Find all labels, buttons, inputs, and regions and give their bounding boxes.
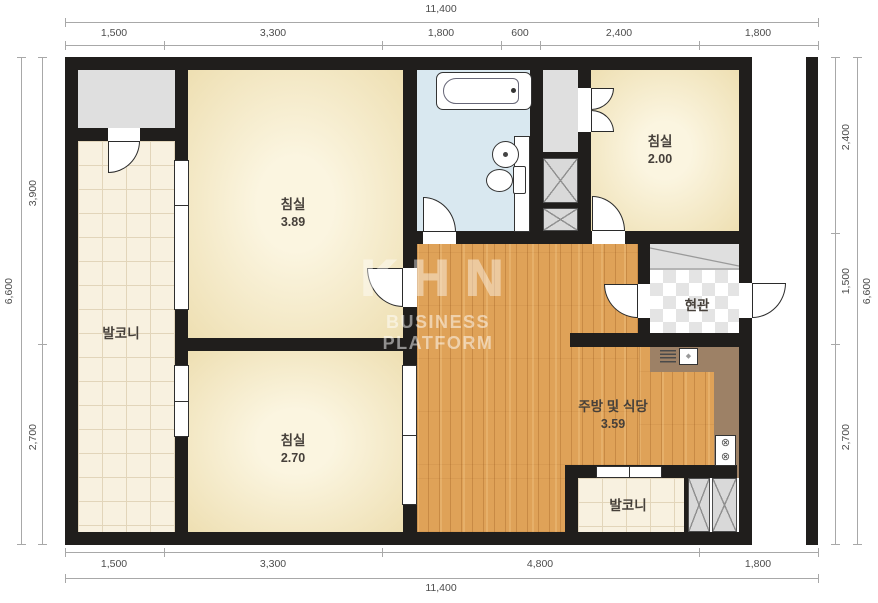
room-label-kitchen-dining: 주방 및 식당 3.59 [553, 398, 673, 432]
bathtub-faucet-icon [511, 88, 516, 93]
ruler-tick [540, 41, 541, 50]
door-opening [423, 231, 456, 244]
ruler-tick [382, 41, 383, 50]
wall-outer-bottom [65, 532, 752, 545]
duct-shaft [543, 70, 578, 152]
ruler-line [857, 57, 858, 545]
ruler-tick [831, 57, 840, 58]
wall-bedroom2-left [578, 57, 591, 244]
ruler-tick [38, 344, 47, 345]
ruler-line [65, 45, 818, 46]
window [174, 160, 189, 310]
ruler-tick [65, 548, 66, 557]
wall-kitchen-top [570, 333, 752, 347]
dim-right-seg3: 2,700 [840, 424, 852, 450]
shoe-cabinet [650, 244, 739, 270]
ac-unit-x-box [712, 478, 737, 532]
wall-adjacent-bar [806, 57, 818, 545]
dim-left-seg1: 3,900 [27, 180, 39, 206]
room-name: 현관 [657, 297, 737, 315]
watermark-logo: KHN [338, 250, 538, 308]
ruler-line [835, 57, 836, 545]
toilet-tank-icon [513, 166, 526, 194]
stove-icon: ⊗ ⊗ [715, 435, 736, 466]
dim-top-seg3: 1,800 [411, 27, 471, 39]
dim-right-seg2: 1,500 [840, 268, 852, 294]
door-opening [578, 88, 591, 132]
floor-plan: 11,400 1,500 3,300 1,800 600 2,400 1,800… [0, 0, 878, 603]
dim-bottom-seg3: 4,800 [510, 558, 570, 570]
shaft-x-box [543, 208, 578, 231]
room-name: 침실 [243, 196, 343, 214]
wall-shaft-divider [543, 152, 578, 158]
watermark-tagline: BUSINESS PLATFORM [330, 312, 546, 354]
dim-bottom-seg1: 1,500 [84, 558, 144, 570]
dim-left-total: 6,600 [3, 278, 15, 304]
bathtub-inner [443, 78, 519, 104]
door-opening [638, 284, 650, 318]
ruler-tick [699, 548, 700, 557]
ruler-line [42, 57, 43, 545]
room-area: 2.70 [243, 450, 343, 466]
ruler-tick [65, 574, 66, 583]
ruler-line [21, 57, 22, 545]
door-opening [739, 283, 752, 318]
dim-right-total: 6,600 [861, 278, 873, 304]
ruler-tick [818, 18, 819, 27]
window [596, 466, 662, 478]
ruler-tick [164, 41, 165, 50]
ruler-tick [17, 57, 26, 58]
dim-top-seg5: 2,400 [589, 27, 649, 39]
room-area: 3.89 [243, 214, 343, 230]
room-name: 주방 및 식당 [553, 398, 673, 416]
door-opening [108, 128, 140, 141]
ruler-tick [818, 41, 819, 50]
ruler-tick [17, 544, 26, 545]
sliding-door [402, 365, 417, 505]
ruler-tick [38, 57, 47, 58]
room-name: 침실 [610, 133, 710, 151]
ruler-tick [699, 41, 700, 50]
ruler-tick [831, 233, 840, 234]
room-label-bedroom-main: 침실 3.89 [243, 196, 343, 230]
storage-room-floor [78, 70, 175, 128]
room-name: 발코니 [71, 325, 171, 343]
ruler-tick [831, 344, 840, 345]
ruler-line [65, 22, 818, 23]
kitchen-sink-icon: ◆ [679, 348, 698, 365]
dim-bottom-seg2: 3,300 [243, 558, 303, 570]
ac-unit-x-box [688, 478, 710, 532]
ruler-tick [65, 18, 66, 27]
room-name: 침실 [243, 432, 343, 450]
ruler-line [65, 552, 818, 553]
ruler-tick [818, 574, 819, 583]
room-area: 2.00 [610, 151, 710, 167]
ruler-tick [38, 544, 47, 545]
room-name: 발코니 [578, 497, 678, 515]
ruler-tick [818, 548, 819, 557]
vent-grill-icon [660, 350, 676, 363]
dim-bottom-total: 11,400 [391, 582, 491, 594]
sink-drain-icon [503, 152, 508, 157]
dim-top-total: 11,400 [391, 3, 491, 15]
ruler-tick [831, 544, 840, 545]
toilet-bowl-icon [486, 169, 513, 192]
room-label-entrance: 현관 [657, 297, 737, 315]
stove-burner-icon: ⊗ [716, 450, 735, 464]
ruler-tick [853, 57, 862, 58]
dim-top-seg2: 3,300 [243, 27, 303, 39]
ruler-line [65, 578, 818, 579]
dim-right-seg1: 2,400 [840, 124, 852, 150]
room-label-bedroom-upper-right: 침실 2.00 [610, 133, 710, 167]
living-room-floor [417, 465, 565, 532]
door-opening [592, 231, 625, 244]
dim-bottom-seg4: 1,800 [728, 558, 788, 570]
shoe-cabinet-lines [650, 244, 739, 270]
ruler-tick [382, 548, 383, 557]
ruler-tick [65, 41, 66, 50]
room-label-balcony-left: 발코니 [71, 325, 171, 343]
wall-shaft-divider [543, 203, 578, 208]
wall-balcony-bottom-left [565, 465, 578, 532]
ruler-tick [501, 41, 502, 50]
stove-burner-icon: ⊗ [716, 436, 735, 450]
dim-top-seg1: 1,500 [84, 27, 144, 39]
door-swing-entrance-main [752, 283, 786, 318]
room-label-balcony-bottom: 발코니 [578, 497, 678, 515]
dim-top-seg6: 1,800 [728, 27, 788, 39]
ruler-tick [164, 548, 165, 557]
dim-top-seg4: 600 [490, 27, 550, 39]
window [174, 365, 189, 437]
room-label-bedroom-lower-left: 침실 2.70 [243, 432, 343, 466]
wall-balcony-shaft-divider [684, 478, 688, 532]
dim-left-seg2: 2,700 [27, 424, 39, 450]
ruler-tick [853, 544, 862, 545]
room-area: 3.59 [553, 416, 673, 432]
shaft-x-box [543, 158, 578, 203]
